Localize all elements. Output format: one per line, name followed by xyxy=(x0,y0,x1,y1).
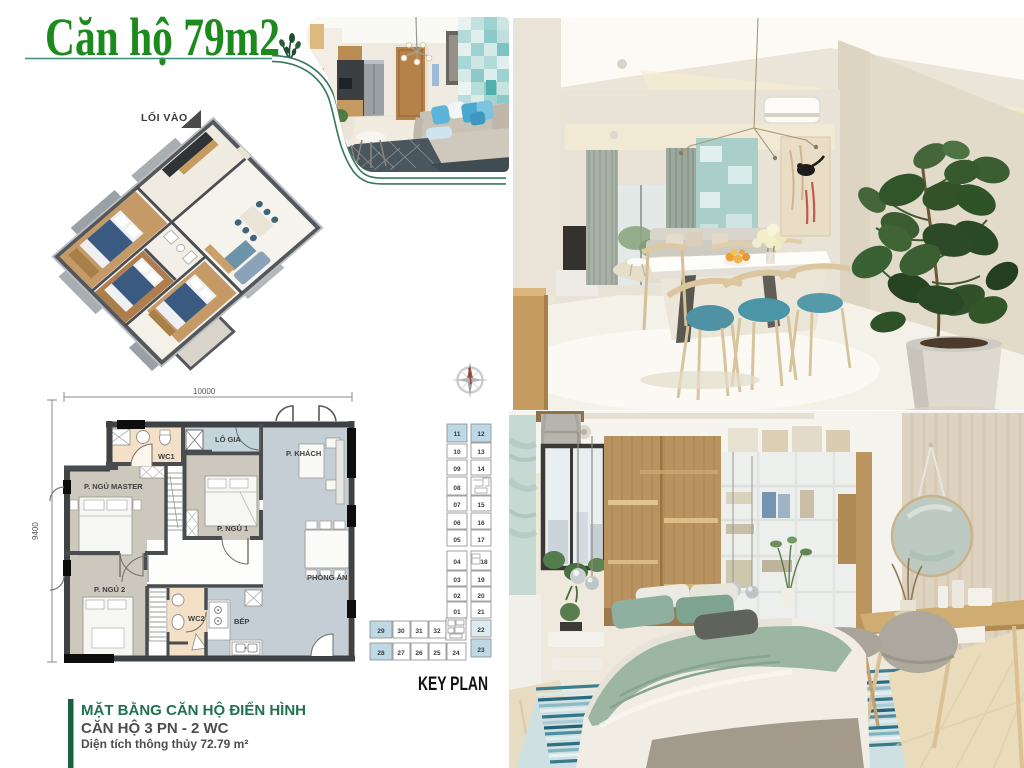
svg-text:12: 12 xyxy=(477,431,485,438)
svg-text:28: 28 xyxy=(377,650,385,657)
svg-text:13: 13 xyxy=(477,449,485,456)
svg-text:WC1: WC1 xyxy=(158,452,175,461)
svg-text:23: 23 xyxy=(477,647,485,654)
svg-text:24: 24 xyxy=(452,650,460,657)
svg-text:18: 18 xyxy=(480,559,488,566)
svg-text:LÔ GIA: LÔ GIA xyxy=(215,435,241,444)
svg-text:01: 01 xyxy=(453,609,461,616)
svg-text:27: 27 xyxy=(397,650,405,657)
svg-text:25: 25 xyxy=(433,650,441,657)
svg-text:LỐI VÀO: LỐI VÀO xyxy=(141,110,188,124)
svg-text:CĂN HỘ 3 PN - 2 WC: CĂN HỘ 3 PN - 2 WC xyxy=(81,719,229,737)
svg-text:9400: 9400 xyxy=(31,522,40,540)
svg-text:PHÒNG ĂN: PHÒNG ĂN xyxy=(307,573,347,582)
svg-text:02: 02 xyxy=(453,593,461,600)
svg-text:KEY PLAN: KEY PLAN xyxy=(418,674,488,695)
svg-text:29: 29 xyxy=(377,628,385,635)
svg-text:26: 26 xyxy=(415,650,423,657)
svg-text:31: 31 xyxy=(415,628,423,635)
svg-text:05: 05 xyxy=(453,537,461,544)
svg-text:06: 06 xyxy=(453,520,461,527)
svg-text:04: 04 xyxy=(453,559,461,566)
svg-text:07: 07 xyxy=(453,502,461,509)
svg-text:Diện tích thông thủy 72.79 m²: Diện tích thông thủy 72.79 m² xyxy=(81,737,248,751)
svg-text:09: 09 xyxy=(453,466,461,473)
svg-text:16: 16 xyxy=(477,520,485,527)
svg-text:10000: 10000 xyxy=(193,387,216,396)
svg-text:BẾP: BẾP xyxy=(234,616,249,626)
svg-text:11: 11 xyxy=(454,431,461,438)
svg-text:P. NGỦ MASTER: P. NGỦ MASTER xyxy=(84,482,143,491)
svg-text:08: 08 xyxy=(453,485,461,492)
svg-text:19: 19 xyxy=(477,577,485,584)
svg-text:P. KHÁCH: P. KHÁCH xyxy=(286,449,321,458)
svg-text:MẶT BẰNG CĂN HỘ ĐIỂN HÌNH: MẶT BẰNG CĂN HỘ ĐIỂN HÌNH xyxy=(81,701,306,719)
svg-text:21: 21 xyxy=(477,609,485,616)
svg-text:22: 22 xyxy=(477,627,485,634)
svg-text:32: 32 xyxy=(433,628,441,635)
svg-text:20: 20 xyxy=(477,593,485,600)
svg-text:P. NGỦ 1: P. NGỦ 1 xyxy=(217,524,248,533)
svg-text:30: 30 xyxy=(397,628,405,635)
svg-text:15: 15 xyxy=(477,502,485,509)
svg-text:03: 03 xyxy=(453,577,461,584)
svg-text:P. NGỦ 2: P. NGỦ 2 xyxy=(94,585,125,594)
svg-text:17: 17 xyxy=(477,537,485,544)
svg-text:10: 10 xyxy=(453,449,461,456)
svg-text:14: 14 xyxy=(477,466,485,473)
svg-text:WC2: WC2 xyxy=(188,614,205,623)
